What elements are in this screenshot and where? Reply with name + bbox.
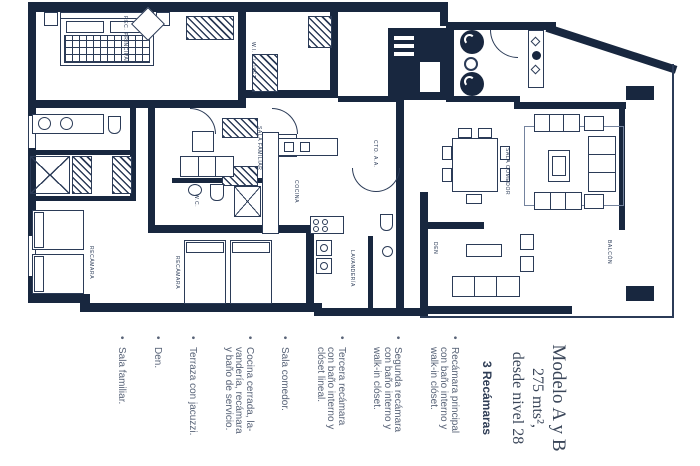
closet-hatch xyxy=(112,156,132,194)
pillow xyxy=(186,242,224,253)
wall-bed3-right xyxy=(306,233,314,311)
dining-table xyxy=(452,138,498,192)
feature-item: Sala familiar. xyxy=(116,347,127,462)
door-arc xyxy=(190,108,216,134)
sofa xyxy=(534,114,580,132)
wall-den-left xyxy=(420,192,428,314)
wall-bath-partition xyxy=(368,236,373,308)
room-label-living: SALA COMEDOR xyxy=(504,148,509,195)
dining-chair xyxy=(442,146,452,160)
bedrooms-subtitle: 3 Recámaras xyxy=(480,334,494,462)
feature-item: Tercera recámara con baño interno y clós… xyxy=(315,347,347,462)
closet-hatch xyxy=(222,118,258,138)
dining-chair xyxy=(458,128,472,138)
closet-hatch xyxy=(72,156,92,194)
feature-item: Den. xyxy=(152,347,163,462)
room-label-wc: W.C. xyxy=(193,194,198,207)
wall-bottom-b xyxy=(80,303,322,312)
pillow xyxy=(66,21,104,33)
model-title: Modelo A y B xyxy=(547,334,570,462)
door-arc xyxy=(272,108,298,134)
info-panel: Modelo A y B 275 mts², desde nivel 28 3 … xyxy=(110,334,572,462)
dining-chair xyxy=(442,168,452,182)
toilet-icon xyxy=(108,116,121,134)
feature-list: Recámara principal con baño interno y wa… xyxy=(116,334,459,462)
room-label-family: SALA FAMILIAR xyxy=(256,126,261,170)
wall-den-top xyxy=(428,222,484,229)
feature-item: Recámara principal con baño interno y wa… xyxy=(428,347,460,462)
side-table xyxy=(584,194,604,209)
appliance xyxy=(284,142,294,152)
wall-service xyxy=(396,236,404,314)
wall-closet xyxy=(238,12,246,108)
burner-icon xyxy=(322,219,328,225)
toilet-icon xyxy=(210,184,224,201)
room-label-den: DEN xyxy=(432,242,437,254)
pillow xyxy=(34,212,44,248)
loveseat xyxy=(588,136,616,192)
dryer-drum-icon xyxy=(320,262,328,270)
room-label-bedroom2: RECÁMARA xyxy=(88,246,93,279)
coffee-table-inner xyxy=(552,156,566,176)
page: { "page": { "background": "#ffffff", "in… xyxy=(0,0,700,466)
door-arc xyxy=(352,168,376,192)
stair-step xyxy=(394,52,414,56)
pillow xyxy=(34,256,44,292)
wall-masterbath-1 xyxy=(28,150,136,155)
toilet-icon xyxy=(380,214,393,231)
room-label-bedroom3: RECÁMARA xyxy=(174,256,179,289)
sofa xyxy=(534,192,582,210)
model-area: 275 mts², xyxy=(527,334,547,462)
planter-leaf-icon xyxy=(464,34,475,45)
feature-item: Segunda recámara con baño interno y walk… xyxy=(371,347,403,462)
floor-plan: REC. PRINCIPAL W.I. CLOSET SALA FAMILIAR… xyxy=(0,0,700,340)
wall-lobby-left xyxy=(446,22,454,102)
tv-console xyxy=(192,131,214,152)
wall-bottom-c xyxy=(314,308,428,316)
stool-icon xyxy=(464,57,478,71)
wall-top xyxy=(28,2,448,12)
side-table xyxy=(584,116,604,131)
burner-icon xyxy=(313,226,319,232)
nightstand xyxy=(44,12,58,26)
balcony-planter-bottom xyxy=(626,286,654,301)
entry-door-arc xyxy=(490,30,518,58)
sofa xyxy=(180,156,234,177)
burner-icon xyxy=(322,226,328,232)
balcony-rail-bottom xyxy=(420,316,674,318)
kitchen-counter xyxy=(262,132,279,234)
den-chair xyxy=(520,256,534,272)
wall-lobby-top xyxy=(446,22,556,30)
sofa xyxy=(452,276,520,297)
room-label-kitchen: COCINA xyxy=(293,180,298,203)
dining-chair xyxy=(466,194,482,204)
room-label-cto: CTO. A.A. xyxy=(372,140,377,168)
stair-step xyxy=(394,44,414,48)
sink-icon xyxy=(38,117,51,130)
planter-leaf-icon xyxy=(464,76,475,87)
wall-living-top xyxy=(514,102,626,109)
appliance xyxy=(300,142,310,152)
bed-blanket xyxy=(64,35,150,63)
feature-item: Cocina cerrada, la- vandería, recámara y… xyxy=(223,347,255,462)
sink-icon xyxy=(382,246,393,257)
wall-masterbath-2 xyxy=(28,196,136,201)
elevator-cab xyxy=(420,62,440,92)
room-label-closet: W.I. CLOSET xyxy=(250,42,255,79)
wall-diagonal xyxy=(546,24,678,74)
balcony-planter-top xyxy=(626,86,654,100)
shower xyxy=(234,186,261,217)
stair-step xyxy=(394,36,414,40)
wall-bottom-a xyxy=(28,294,90,303)
wall-kitchen xyxy=(396,98,404,236)
pillow xyxy=(232,242,270,253)
feature-item: Terraza con jacuzzi. xyxy=(187,347,198,462)
wall-living-bottom xyxy=(424,306,572,314)
room-label-balcony: BALCÓN xyxy=(606,240,611,264)
room-label-master: REC. PRINCIPAL xyxy=(122,16,127,64)
den-chair xyxy=(520,234,534,250)
closet-hatch xyxy=(308,16,332,48)
burner-icon xyxy=(313,219,319,225)
sink-icon xyxy=(60,117,73,130)
feature-item: Sala comedor. xyxy=(279,347,290,462)
wall-central xyxy=(148,225,314,233)
room-label-laundry: LAVANDERÍA xyxy=(349,250,354,287)
den-table xyxy=(466,244,502,257)
washer-drum-icon xyxy=(320,244,328,252)
wall-lobby-bottom xyxy=(446,96,520,102)
console-decor-icon xyxy=(532,51,541,60)
closet-hatch xyxy=(186,16,234,40)
dining-chair xyxy=(478,128,492,138)
wall-family-left xyxy=(148,104,155,232)
shower xyxy=(30,156,70,194)
model-level: desde nivel 28 xyxy=(507,334,527,462)
balcony-rail-right xyxy=(672,64,674,316)
wall-suite-divider xyxy=(28,100,246,108)
